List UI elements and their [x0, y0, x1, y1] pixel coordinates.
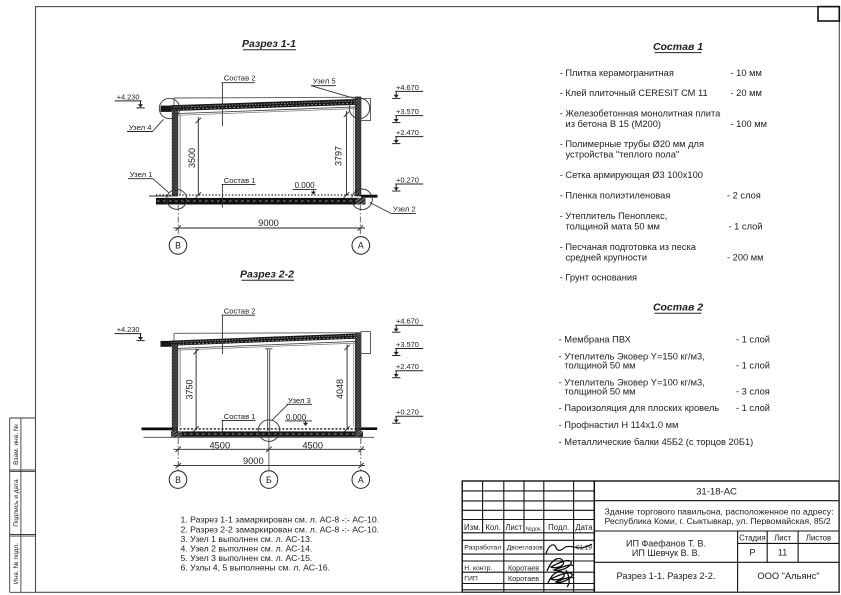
svg-text:толщиной мата 50 мм: толщиной мата 50 мм [566, 221, 660, 231]
svg-text:4500: 4500 [302, 440, 323, 450]
svg-text:Здание торгового павильона, ра: Здание торгового павильона, расположенно… [605, 506, 834, 516]
svg-text:+0.270: +0.270 [396, 408, 419, 417]
svg-text:Разрез 1-1. Разрез 2-2.: Разрез 1-1. Разрез 2-2. [616, 571, 715, 581]
svg-text:Двоеглазов: Двоеглазов [507, 545, 544, 552]
svg-text:Разрез 2-2: Разрез 2-2 [240, 269, 294, 281]
svg-text:ИП Шевчук В. В.: ИП Шевчук В. В. [632, 548, 700, 558]
svg-text:Состав 2: Состав 2 [224, 306, 256, 315]
svg-text:Разработал: Разработал [464, 544, 501, 552]
svg-text:+3.570: +3.570 [396, 107, 419, 116]
svg-text:№док.: №док. [526, 527, 543, 533]
svg-text:средней крупности: средней крупности [566, 252, 648, 262]
svg-text:Состав 1: Состав 1 [224, 412, 256, 421]
svg-text:Состав 1: Состав 1 [224, 176, 256, 185]
svg-text:Узел 5: Узел 5 [313, 77, 336, 86]
svg-text:+2.470: +2.470 [396, 128, 419, 137]
svg-text:Кол.: Кол. [485, 523, 500, 532]
svg-text:+2.470: +2.470 [396, 362, 419, 371]
svg-text:В: В [175, 475, 181, 485]
svg-text:Дата: Дата [575, 523, 593, 532]
svg-text:Состав 2: Состав 2 [653, 302, 703, 314]
svg-text:- 2 слоя: - 2 слоя [727, 191, 761, 201]
svg-text:+4.230: +4.230 [117, 92, 140, 101]
svg-text:Узел 2: Узел 2 [393, 205, 416, 214]
svg-text:ИП Фаефанов Т. В.: ИП Фаефанов Т. В. [626, 538, 706, 548]
svg-text:Н. контр.: Н. контр. [464, 565, 492, 572]
svg-text:- Пленка полиэтиленовая: - Пленка полиэтиленовая [560, 191, 671, 201]
svg-text:- 1 слой: - 1 слой [736, 403, 770, 413]
svg-text:- Плитка керамогранитная: - Плитка керамогранитная [560, 68, 674, 78]
svg-text:- Грунт основания: - Грунт основания [560, 272, 637, 282]
svg-text:Узел 4: Узел 4 [129, 123, 153, 132]
svg-text:- Сетка армирующая Ø3 100х100: - Сетка армирующая Ø3 100х100 [560, 170, 703, 180]
svg-text:1. Разрез 1-1 замаркирован см.: 1. Разрез 1-1 замаркирован см. л. АС-8 -… [181, 515, 380, 525]
svg-text:Листов: Листов [806, 534, 831, 543]
svg-text:9000: 9000 [243, 456, 264, 466]
svg-text:4500: 4500 [209, 440, 230, 450]
svg-text:+4.670: +4.670 [396, 317, 419, 326]
svg-text:Коротаев: Коротаев [508, 563, 539, 572]
svg-text:4048: 4048 [335, 379, 345, 399]
svg-text:- 10 мм: - 10 мм [731, 68, 762, 78]
svg-text:- 1 слой: - 1 слой [736, 335, 770, 345]
svg-text:5. Узел 3 выполнен см. л. АС-1: 5. Узел 3 выполнен см. л. АС-15. [181, 553, 313, 563]
svg-text:Подпись и дата: Подпись и дата [13, 479, 20, 527]
svg-text:- Профнастил Н 114х1.0 мм: - Профнастил Н 114х1.0 мм [559, 420, 679, 430]
svg-text:Взам. инв. №: Взам. инв. № [13, 424, 20, 465]
svg-text:- 1 слой: - 1 слой [736, 361, 770, 371]
svg-text:Изм.: Изм. [464, 523, 481, 532]
svg-text:Р: Р [749, 548, 755, 558]
svg-text:Разрез 1-1: Разрез 1-1 [242, 38, 296, 50]
svg-text:ООО "Альянс": ООО "Альянс" [757, 571, 819, 581]
svg-text:устройства "теплого пола": устройства "теплого пола" [566, 150, 680, 160]
svg-text:Узел 3: Узел 3 [288, 396, 311, 405]
svg-text:- Утеплитель Пеноплекс,: - Утеплитель Пеноплекс, [560, 211, 668, 221]
svg-text:Б: Б [266, 475, 272, 485]
svg-text:- Песчаная подготовка из песка: - Песчаная подготовка из песка [560, 242, 697, 252]
svg-text:Республика Коми, г. Сыктывкар,: Республика Коми, г. Сыктывкар, ул. Перво… [605, 516, 831, 526]
svg-text:3500: 3500 [187, 148, 197, 168]
svg-text:6. Узлы 4, 5 выполнены см. л.: 6. Узлы 4, 5 выполнены см. л. АС-16. [181, 563, 330, 573]
svg-text:- Мембрана ПВХ: - Мембрана ПВХ [559, 335, 631, 345]
svg-text:Состав 1: Состав 1 [653, 41, 703, 53]
svg-text:- Железобетонная монолитная п: - Железобетонная монолитная плита [560, 109, 721, 119]
svg-text:3. Узел 1 выполнен см. л. АС-1: 3. Узел 1 выполнен см. л. АС-13. [181, 534, 313, 544]
svg-text:- Клей плиточный CERESIT СМ 11: - Клей плиточный CERESIT СМ 11 [560, 88, 708, 98]
svg-text:Подл.: Подл. [548, 523, 569, 532]
svg-text:Инв. № подл.: Инв. № подл. [13, 543, 20, 584]
svg-text:+3.570: +3.570 [396, 340, 419, 349]
svg-text:В: В [175, 241, 181, 251]
svg-text:- 200 мм: - 200 мм [727, 252, 764, 262]
svg-text:4. Узел 2 выполнен см. л. АС-1: 4. Узел 2 выполнен см. л. АС-14. [181, 544, 313, 554]
svg-text:Коротаев: Коротаев [508, 574, 539, 583]
svg-text:- 1 слой: - 1 слой [729, 221, 763, 231]
svg-text:9000: 9000 [258, 218, 279, 228]
svg-text:Лист: Лист [505, 523, 522, 532]
svg-text:из бетона В 15 (М200): из бетона В 15 (М200) [566, 119, 662, 129]
svg-text:3797: 3797 [334, 146, 344, 166]
svg-text:3750: 3750 [184, 379, 194, 399]
svg-text:толщиной 50 мм: толщиной 50 мм [564, 387, 635, 397]
svg-text:Лист: Лист [774, 534, 791, 543]
svg-text:+0.270: +0.270 [396, 176, 419, 185]
svg-text:0.000: 0.000 [295, 181, 316, 190]
svg-text:Состав 2: Состав 2 [224, 74, 256, 83]
svg-text:- Пароизоляция для плоских кро: - Пароизоляция для плоских кровель [559, 403, 720, 413]
svg-text:- 100 мм: - 100 мм [731, 119, 768, 129]
svg-text:толщиной 50 мм: толщиной 50 мм [564, 361, 635, 371]
svg-text:Стадия: Стадия [739, 534, 766, 543]
svg-text:- 3 слоя: - 3 слоя [736, 387, 770, 397]
svg-text:31-18-АС: 31-18-АС [696, 487, 737, 498]
svg-text:- Полимерные трубы Ø20 мм для: - Полимерные трубы Ø20 мм для [560, 139, 704, 149]
svg-text:А: А [358, 241, 364, 251]
svg-text:- 20 мм: - 20 мм [731, 88, 762, 98]
svg-text:+4.230: +4.230 [117, 325, 140, 334]
svg-text:11: 11 [778, 548, 787, 558]
svg-text:ГИП: ГИП [464, 576, 478, 583]
svg-text:- Металлические балки 45Б2 (с: - Металлические балки 45Б2 (с торцов 20Б… [559, 437, 754, 447]
svg-text:Узел 1: Узел 1 [130, 170, 153, 179]
svg-text:А: А [358, 475, 364, 485]
svg-text:+4.670: +4.670 [396, 83, 419, 92]
svg-text:2. Разрез 2-2 замаркирован см.: 2. Разрез 2-2 замаркирован см. л. АС-8 -… [181, 524, 380, 534]
